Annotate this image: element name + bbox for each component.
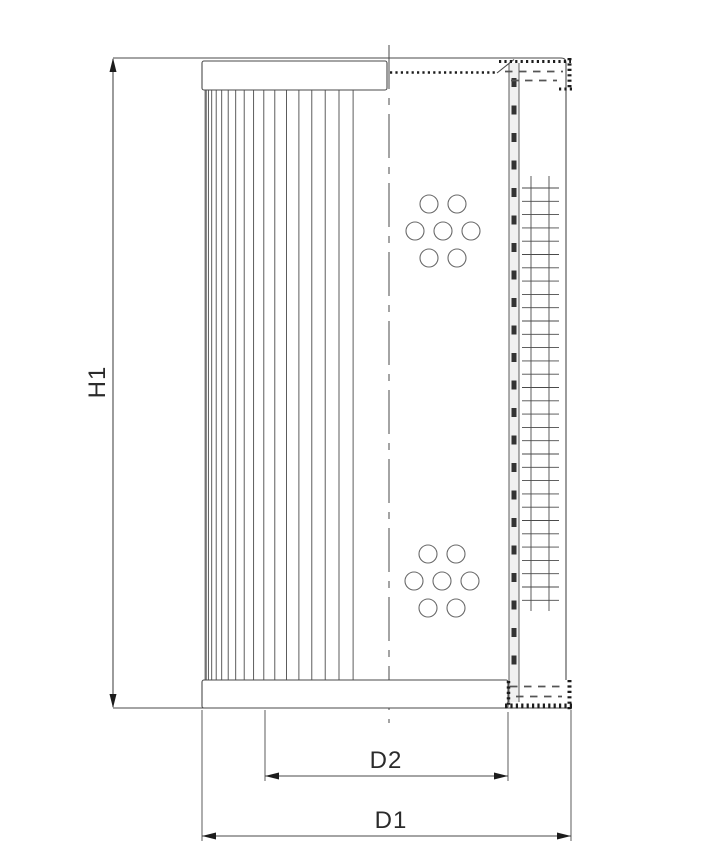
technical-drawing: H1 D2 D1 [0,0,727,862]
d1-arrow-left [202,833,216,840]
drain-hole [447,599,465,617]
drain-hole [406,222,424,240]
d2-arrow-right [494,773,508,780]
drain-hole [448,195,466,213]
element-outline [113,58,571,708]
top-cap-section [202,61,387,90]
drain-hole [462,222,480,240]
drain-hole [419,599,437,617]
drain-hole [461,572,479,590]
drain-hole [420,195,438,213]
h1-arrow-up [110,58,117,72]
outer-shell-top-right [113,58,566,680]
drain-hole [420,249,438,267]
d1-label: D1 [375,807,408,834]
pleated-filter-media [205,90,353,680]
bottom-cap-section [202,680,508,708]
dimension-d2: D2 [265,710,508,781]
d2-arrow-left [265,773,279,780]
drain-hole [434,222,452,240]
dimension-h1: H1 [84,58,117,708]
drain-hole [419,545,437,563]
d2-label: D2 [370,747,403,774]
support-mesh [522,176,559,611]
filter-element-diagram: H1 D2 D1 [0,0,727,862]
drain-hole [448,249,466,267]
drain-holes-lower [405,545,479,617]
drain-hole [405,572,423,590]
d1-arrow-right [557,833,571,840]
drain-hole [447,545,465,563]
perforated-core-tube [509,63,519,702]
h1-arrow-down [110,694,117,708]
drain-holes-upper [406,195,480,267]
mesh-rungs [522,188,559,600]
h1-label: H1 [84,366,111,399]
drain-hole [433,572,451,590]
